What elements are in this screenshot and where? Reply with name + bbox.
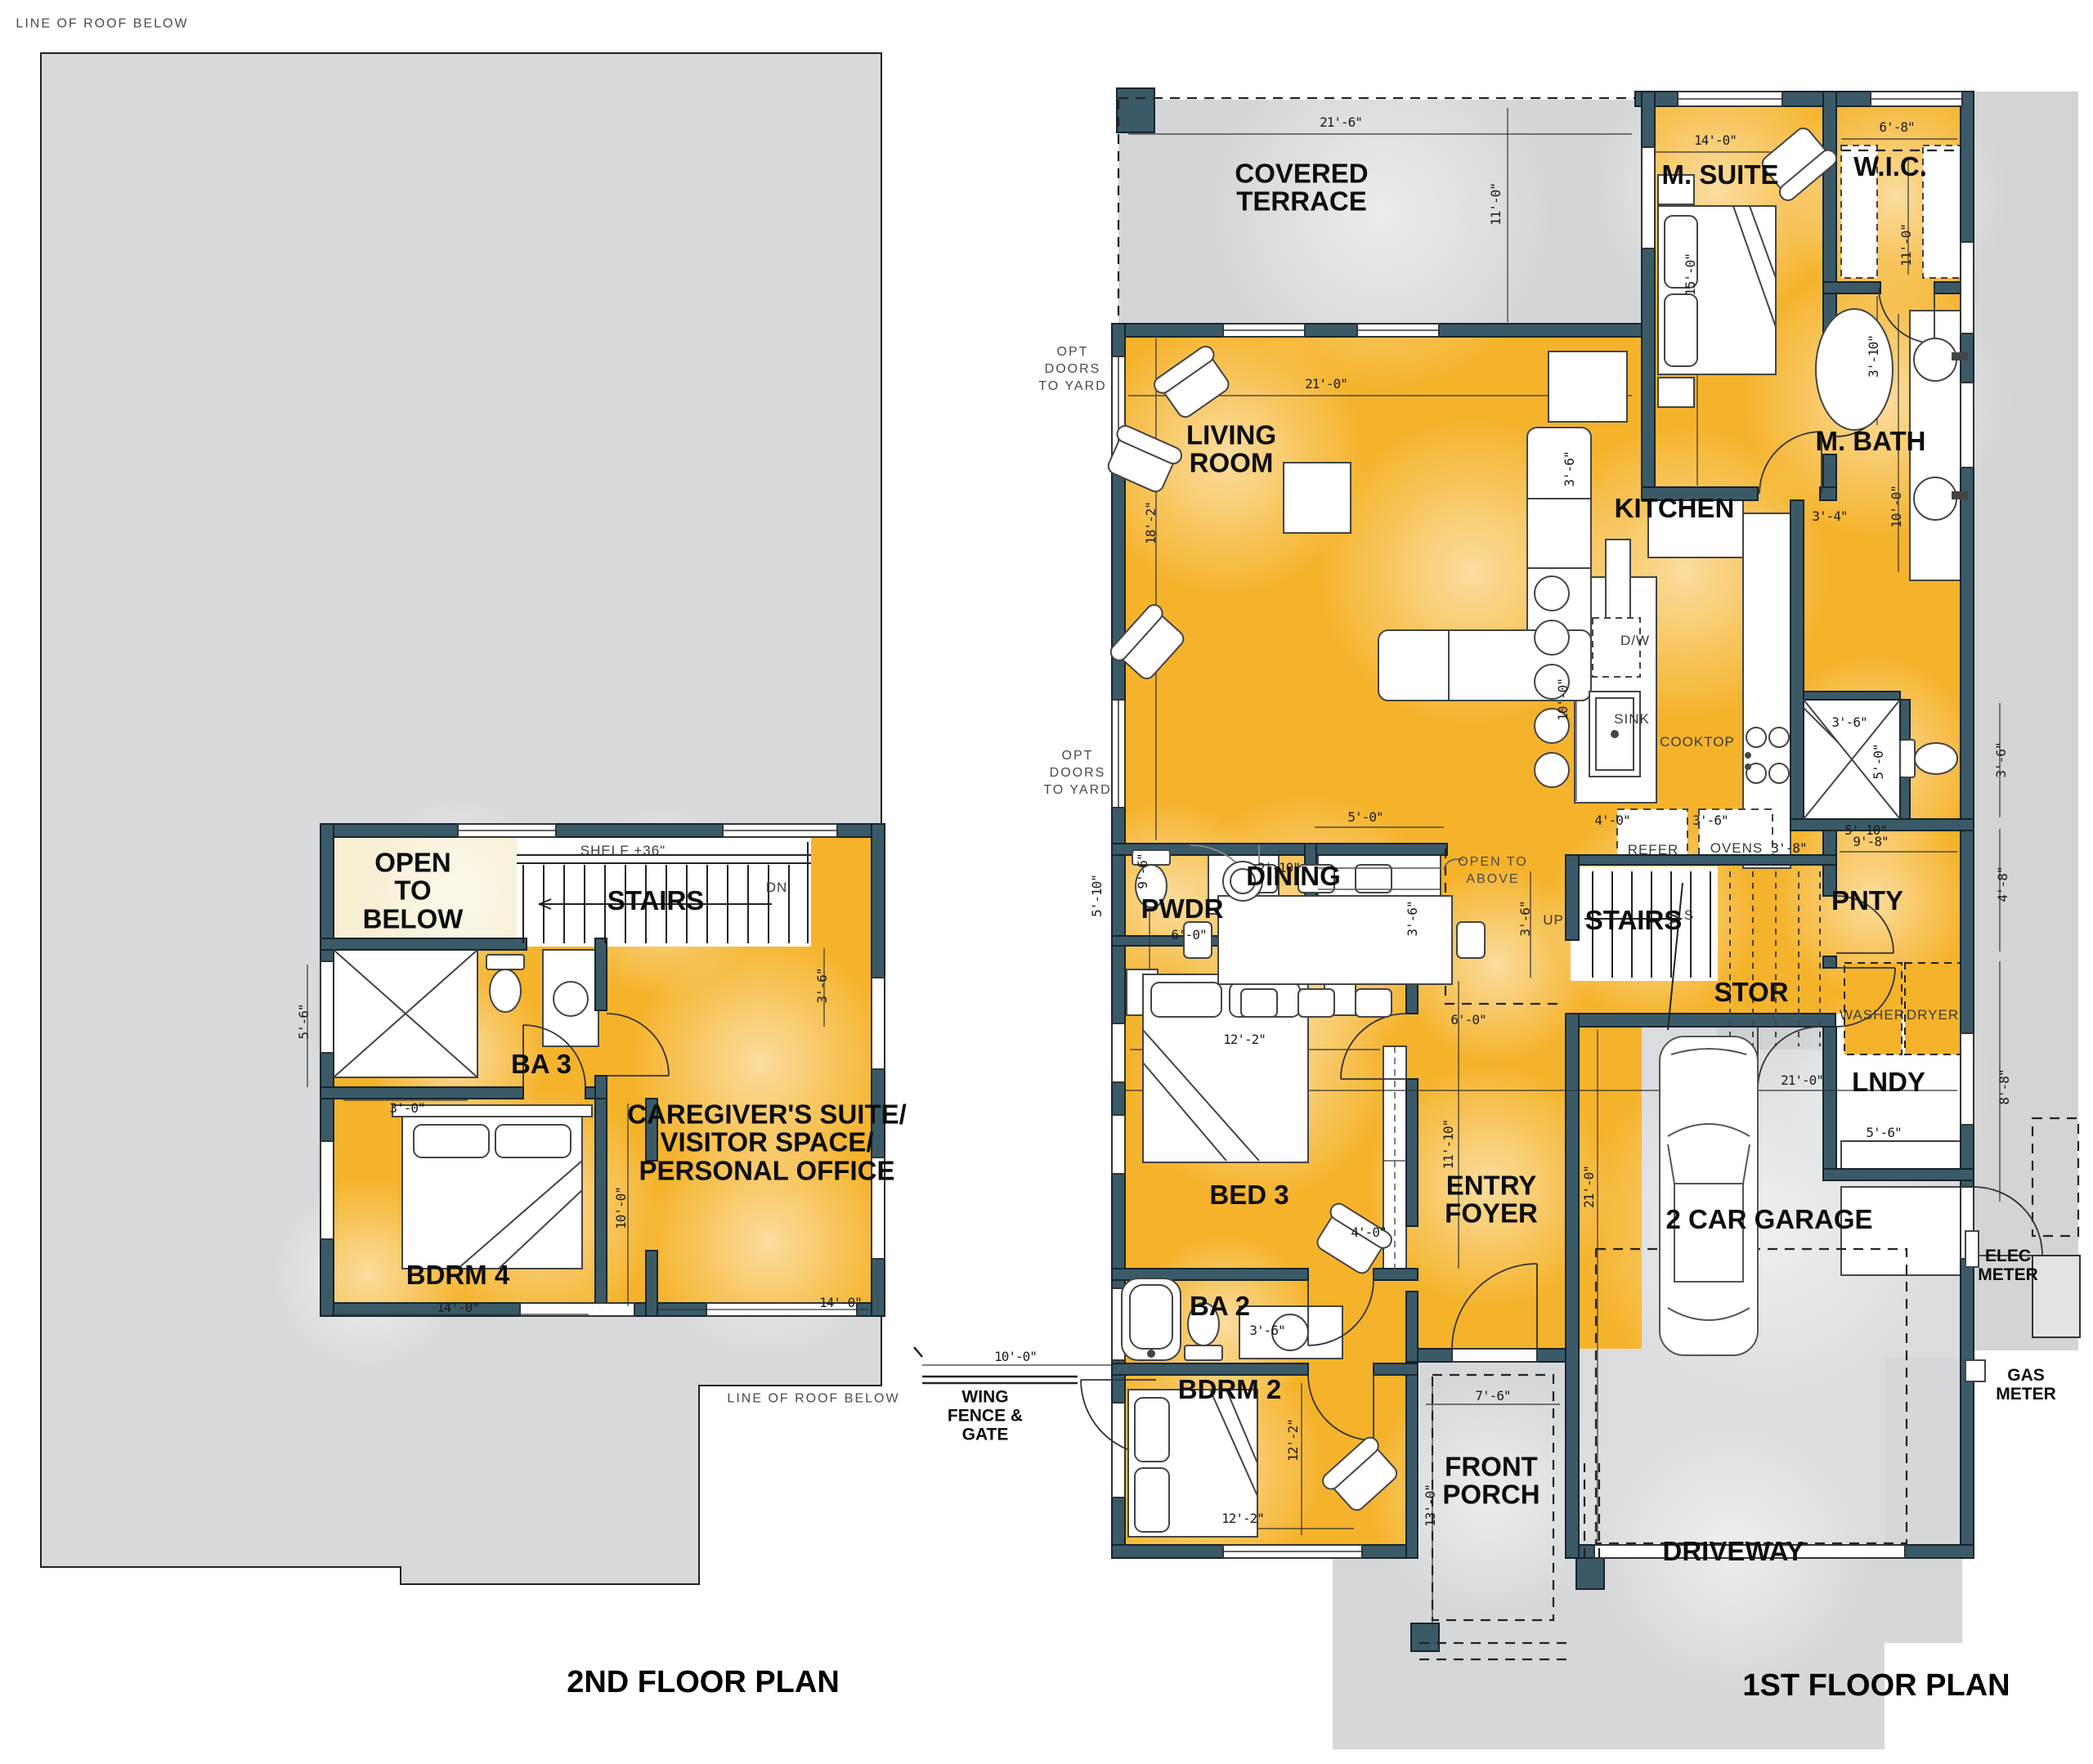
tiny-ovens: OVENS	[1710, 840, 1764, 857]
room-stairs-2nd: STAIRS	[607, 887, 705, 915]
room-caregiver: CAREGIVER'S SUITE/ VISITOR SPACE/ PERSON…	[627, 1101, 907, 1185]
dim-mbath-d: 10'-0"	[1890, 486, 1903, 528]
room-driveway: DRIVEWAY	[1663, 1538, 1804, 1565]
dim-stairs-2nd: 3'-6"	[816, 968, 829, 1003]
dim-pwdr-3: 6'-0"	[1171, 929, 1206, 942]
room-msuite: M. SUITE	[1661, 161, 1778, 189]
dim-bdrm4-d: 10'-0"	[615, 1187, 628, 1229]
dim-lndy-d: 8'-8"	[1998, 1069, 2011, 1104]
dim-ba3-width: 5'-6"	[298, 1004, 311, 1039]
note-elec-meter: ELEC METER	[1978, 1247, 2038, 1284]
dim-living-w: 21'-0"	[1305, 378, 1347, 391]
dim-pwdr-1: 2'-10"	[1257, 862, 1300, 875]
room-front-porch: FRONT PORCH	[1442, 1453, 1539, 1510]
dim-dining: 9'-6"	[1136, 853, 1150, 889]
room-pwdr: PWDR	[1141, 895, 1224, 923]
dim-garage-w: 21'-0"	[1781, 1074, 1823, 1087]
dim-island-w: 4'-0"	[1594, 814, 1629, 827]
dim-garage-d: 21'-0"	[1583, 1166, 1596, 1208]
tiny-switch: S	[1684, 907, 1694, 924]
room-bdrm2: BDRM 2	[1178, 1376, 1282, 1404]
dim-lndy-w: 5'-6"	[1866, 1126, 1901, 1139]
room-open-to-below: OPEN TO BELOW	[363, 849, 464, 933]
dim-shower-d: 5'-0"	[1872, 744, 1885, 779]
note-gas-meter: GAS METER	[1996, 1366, 2056, 1404]
room-covered-terrace: COVERED TERRACE	[1235, 160, 1368, 217]
dim-foyer: 6'-0"	[1450, 1014, 1486, 1027]
dim-mbath-jog: 3'-4"	[1812, 510, 1847, 523]
dim-wic-d: 11'-0"	[1900, 224, 1913, 266]
dim-pnty-w: 9'-8"	[1853, 835, 1888, 848]
room-dining: DINING	[1246, 862, 1341, 890]
room-mbath: M. BATH	[1815, 428, 1925, 455]
note-wing-fence: WING FENCE & GATE	[948, 1387, 1023, 1444]
floor-plan-sheet: LINE OF ROOF BELOWLINE OF ROOF BELOWOPEN…	[0, 0, 2093, 1764]
dim-kitchen-2: 3'-6"	[1692, 814, 1728, 827]
dim-closet: 5'-0"	[1347, 811, 1383, 824]
dim-bed3-w: 12'-2"	[1223, 1033, 1266, 1046]
dim-bed3-d: 11'-10"	[1442, 1120, 1455, 1169]
dim-bdrm4-w: 14'-0"	[437, 1301, 479, 1314]
dim-pwdr-2: 5'-10"	[1091, 875, 1104, 917]
note-opt-doors-2: OPT DOORS TO YARD	[1043, 748, 1111, 799]
note-shelf: SHELF +36"	[580, 843, 666, 859]
dim-open-above: 3'-6"	[1406, 901, 1419, 936]
note-line-of-roof-top: LINE OF ROOF BELOW	[16, 16, 188, 34]
room-pnty: PNTY	[1831, 887, 1903, 915]
dim-bdrm2-w: 12'-2"	[1221, 1512, 1264, 1525]
labels-layer: LINE OF ROOF BELOWLINE OF ROOF BELOWOPEN…	[0, 0, 2093, 1764]
dim-wc-nook: 5'-10"	[1844, 824, 1887, 837]
dim-ba2: 3'-6"	[1249, 1324, 1284, 1337]
room-garage: 2 CAR GARAGE	[1665, 1206, 1872, 1233]
room-kitchen: KITCHEN	[1615, 495, 1735, 522]
dim-pnty-d: 4'-8"	[1997, 866, 2010, 902]
tiny-refer: REFER	[1628, 842, 1679, 858]
dim-wc-right: 3'-6"	[1995, 742, 2008, 777]
dim-shower-w: 3'-6"	[1831, 716, 1867, 729]
note-dn: DN	[766, 880, 788, 896]
tiny-washer: WASHER	[1840, 1007, 1905, 1023]
room-living: LIVING ROOM	[1186, 422, 1276, 478]
dim-wic-w: 6'-8"	[1879, 121, 1914, 134]
dim-kitchen-1: 3'-6"	[1563, 451, 1576, 486]
dim-wic-hall: 3'-10"	[1867, 335, 1880, 378]
dim-living-d: 18'-2"	[1145, 502, 1158, 544]
room-bdrm4: BDRM 4	[406, 1261, 510, 1289]
note-open-above: OPEN TO ABOVE	[1458, 854, 1527, 889]
dim-porch-d: 13'-0"	[1424, 1484, 1437, 1527]
note-opt-doors-1: OPT DOORS TO YARD	[1038, 344, 1106, 395]
tiny-dw: D/W	[1620, 633, 1650, 649]
tiny-cooktop: COOKTOP	[1660, 734, 1735, 750]
room-ba3: BA 3	[511, 1050, 571, 1078]
dim-porch-w: 7'-6"	[1475, 1390, 1510, 1403]
dim-bdrm2-d: 12'-2"	[1287, 1419, 1300, 1462]
note-line-of-roof-bottom: LINE OF ROOF BELOW	[727, 1391, 899, 1408]
room-stairs-1st: STAIRS	[1585, 907, 1683, 934]
dim-shower3: 3'-0"	[389, 1102, 424, 1115]
dim-stairs-1st: 3'-6"	[1519, 901, 1532, 936]
dim-terrace-w: 21'-6"	[1320, 116, 1362, 129]
dim-terrace-d: 11'-0"	[1490, 183, 1503, 226]
room-lndy: LNDY	[1852, 1068, 1925, 1096]
room-stor: STOR	[1714, 978, 1788, 1006]
first-floor-title: 1ST FLOOR PLAN	[1742, 1670, 2010, 1701]
room-entry-foyer: ENTRY FOYER	[1445, 1172, 1538, 1229]
dim-msuite-w: 14'-0"	[1694, 134, 1737, 147]
dim-msuite-d: 15'-0"	[1684, 253, 1697, 296]
room-wic: W.I.C.	[1853, 153, 1927, 181]
tiny-up: UP	[1543, 912, 1564, 929]
tiny-sink: SINK	[1614, 711, 1650, 728]
dim-wing: 10'-0"	[994, 1350, 1037, 1363]
dim-caregiver-w: 14'-0"	[819, 1296, 862, 1310]
room-bed3: BED 3	[1209, 1181, 1289, 1209]
dim-hall: 4'-0"	[1351, 1226, 1386, 1239]
second-floor-title: 2ND FLOOR PLAN	[567, 1667, 840, 1698]
tiny-dryer: DRYER	[1907, 1007, 1959, 1023]
room-ba2: BA 2	[1190, 1292, 1250, 1320]
dim-island-d: 10'-0"	[1557, 678, 1570, 721]
dim-stor: 3'-8"	[1771, 842, 1806, 855]
